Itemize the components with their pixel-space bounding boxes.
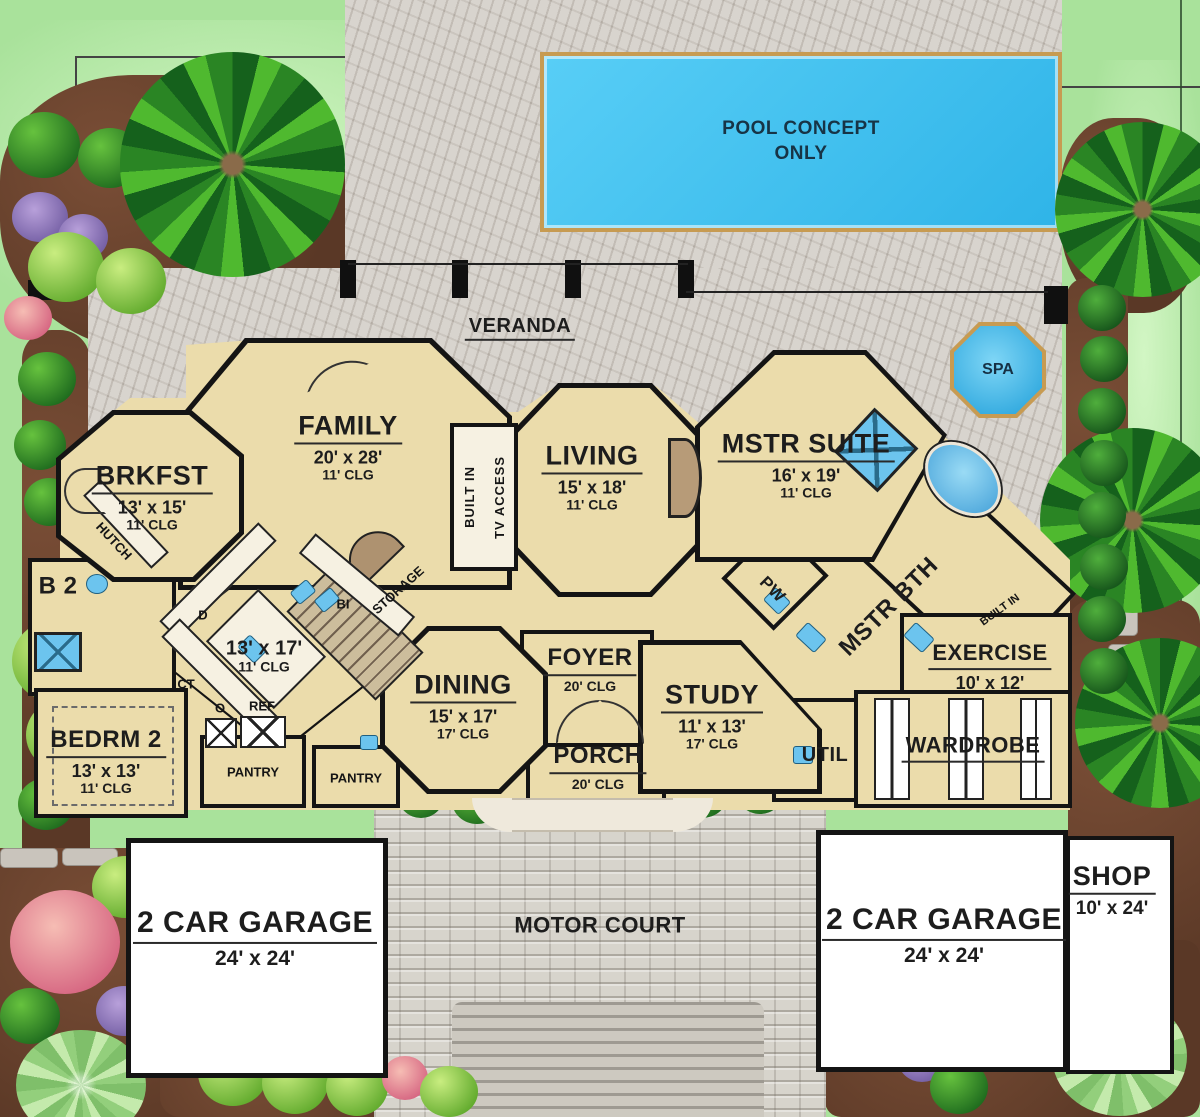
pool-label-line1: POOL CONCEPT <box>722 117 880 142</box>
tv-access-label: TV ACCESS <box>492 456 507 539</box>
pool: POOL CONCEPT ONLY <box>540 52 1062 232</box>
pool-label-line2: ONLY <box>722 142 880 167</box>
pantry1-label: PANTRY <box>227 765 279 780</box>
builtin-label: BUILT IN <box>462 466 477 528</box>
hedge-bush <box>1078 492 1126 538</box>
bush <box>96 248 166 314</box>
bath2-sink <box>86 574 108 594</box>
label-shop: SHOP10' x 24' <box>1069 861 1156 920</box>
oven-appliance <box>205 718 237 748</box>
bi-label: BI <box>337 597 350 612</box>
stepping-stone <box>0 848 58 868</box>
label-garage-right: 2 CAR GARAGE24' x 24' <box>822 903 1066 967</box>
label-study: STUDY11' x 13'17' CLG <box>661 679 763 752</box>
label-bath2: B 2 <box>35 574 82 603</box>
label-garage-left: 2 CAR GARAGE24' x 24' <box>133 906 377 970</box>
spa: SPA <box>950 322 1046 418</box>
label-dining: DINING15' x 17'17' CLG <box>410 669 516 742</box>
dishwasher-label: D <box>198 608 207 623</box>
label-veranda: VERANDA <box>465 315 575 341</box>
hedge-bush <box>1080 440 1128 486</box>
bush <box>8 112 80 178</box>
hedge-bush <box>1080 336 1128 382</box>
fireplace <box>668 438 702 518</box>
label-bedrm2: BEDRM 213' x 13'11' CLG <box>46 727 166 797</box>
label-porch: PORCH20' CLG <box>549 743 646 793</box>
bush <box>28 232 104 302</box>
builtin-tv-cabinet: BUILT IN TV ACCESS <box>450 423 518 571</box>
bush <box>18 352 76 406</box>
label-brkfst: BRKFST13' x 15'11' CLG <box>92 460 213 533</box>
porch-steps <box>510 798 675 832</box>
label-motor-court: MOTOR COURT <box>510 914 689 941</box>
hedge-bush <box>1080 648 1128 694</box>
veranda-pillar <box>340 260 356 298</box>
label-exercise: EXERCISE10' x 12' <box>928 641 1051 693</box>
palm-tree <box>120 52 345 277</box>
oven-label: O <box>215 701 225 716</box>
veranda-pillar <box>565 260 581 298</box>
refrigerator <box>240 716 286 748</box>
hedge-bush <box>1078 388 1126 434</box>
label-util: UTIL <box>798 744 852 768</box>
bush <box>420 1066 478 1117</box>
label-kitchen: 13' x 17'11' CLG <box>226 634 302 675</box>
flower-bush <box>4 296 52 340</box>
floor-plan-canvas: POOL CONCEPT ONLY SPA BUILT IN TV ACCESS <box>0 0 1200 1117</box>
ref-label: REF <box>249 699 275 714</box>
hedge-bush <box>1078 596 1126 642</box>
hedge-bush <box>1080 544 1128 590</box>
veranda-pillar <box>452 260 468 298</box>
cooktop-label: CT <box>177 677 194 692</box>
bath2-shower <box>34 632 82 672</box>
label-foyer: FOYER20' CLG <box>543 645 636 695</box>
label-wardrobe: WARDROBE <box>902 734 1045 763</box>
spa-label: SPA <box>982 361 1014 379</box>
hedge-bush <box>1078 285 1126 331</box>
pantry2-label: PANTRY <box>330 771 382 786</box>
veranda-beam <box>348 263 688 265</box>
veranda-beam <box>686 291 1048 293</box>
label-mstr-suite: MSTR SUITE16' x 19'11' CLG <box>718 428 895 501</box>
front-walkway <box>452 1002 764 1117</box>
label-living: LIVING15' x 18'11' CLG <box>541 440 642 513</box>
label-family: FAMILY20' x 28'11' CLG <box>294 410 402 483</box>
butler-sink <box>360 735 378 750</box>
flower-bush <box>10 890 120 994</box>
